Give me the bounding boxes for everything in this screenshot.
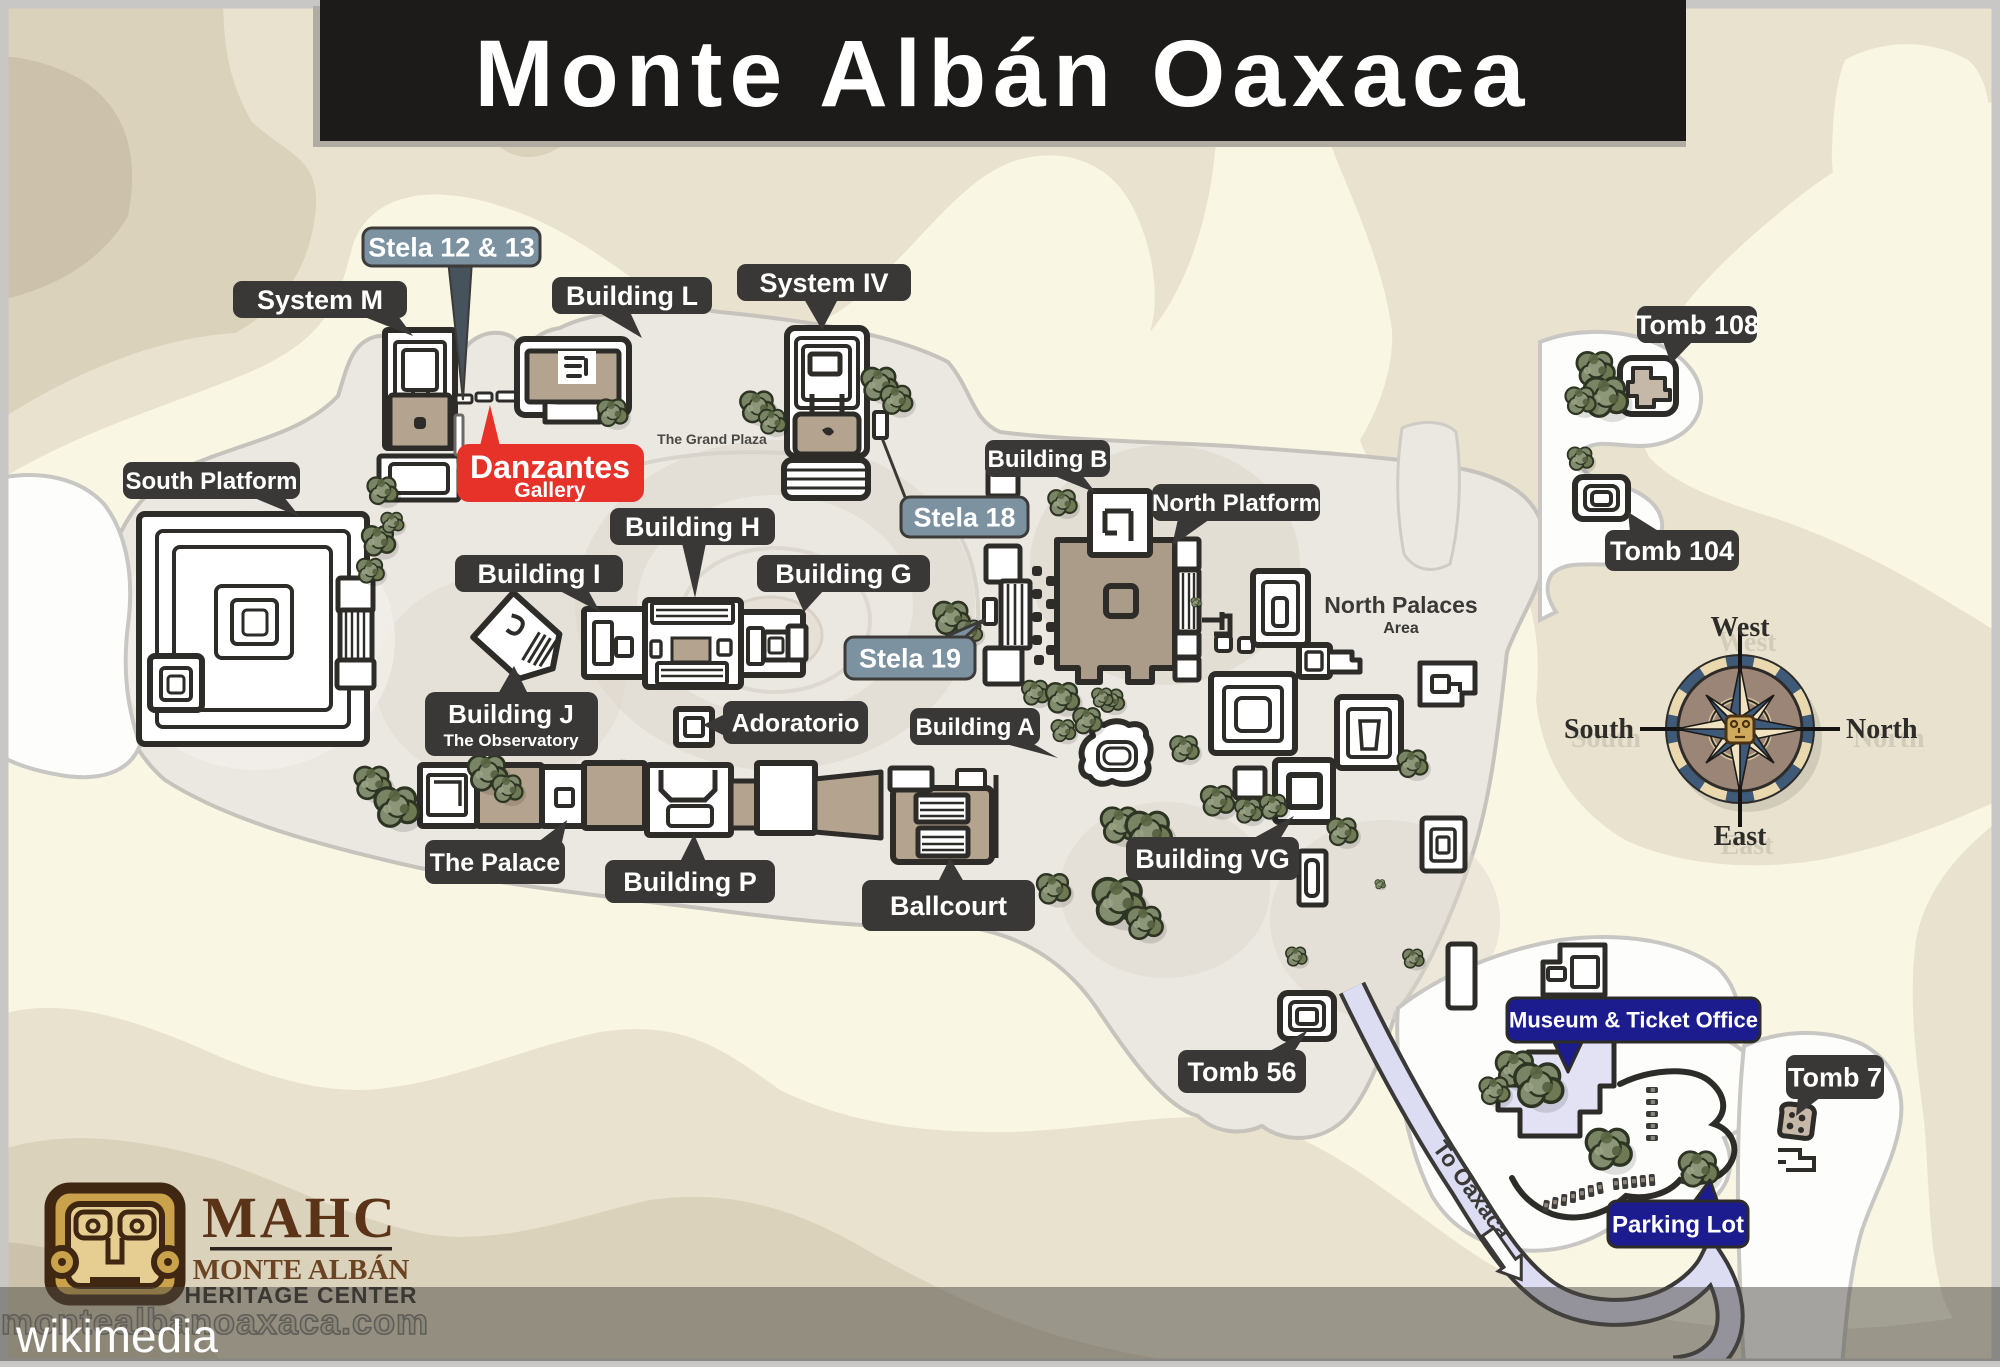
svg-text:System IV: System IV	[759, 268, 888, 298]
svg-text:System M: System M	[257, 285, 383, 315]
svg-text:East: East	[1714, 821, 1768, 852]
svg-text:Stela 12 & 13: Stela 12 & 13	[368, 232, 535, 262]
svg-text:The Palace: The Palace	[430, 849, 561, 877]
svg-text:Building B: Building B	[988, 446, 1108, 473]
svg-text:Building A: Building A	[915, 714, 1034, 741]
svg-text:Museum & Ticket Office: Museum & Ticket Office	[1509, 1008, 1758, 1033]
svg-text:Building G: Building G	[775, 559, 911, 589]
svg-text:The Observatory: The Observatory	[443, 731, 579, 750]
svg-text:Ballcourt: Ballcourt	[890, 891, 1007, 921]
svg-text:The Grand Plaza: The Grand Plaza	[657, 431, 767, 447]
svg-text:South Platform: South Platform	[126, 468, 298, 495]
svg-text:Monte Albán Oaxaca: Monte Albán Oaxaca	[475, 21, 1532, 127]
svg-text:Tomb 7: Tomb 7	[1788, 1062, 1882, 1092]
svg-text:Stela 19: Stela 19	[859, 643, 961, 673]
svg-text:Building H: Building H	[625, 512, 760, 542]
svg-text:wikimedia: wikimedia	[15, 1310, 218, 1362]
svg-text:North Palaces: North Palaces	[1324, 592, 1477, 618]
svg-text:Stela 18: Stela 18	[913, 502, 1015, 532]
svg-text:MAHC: MAHC	[202, 1185, 398, 1250]
svg-text:North: North	[1846, 714, 1918, 745]
svg-text:Area: Area	[1383, 620, 1419, 637]
svg-text:North Platform: North Platform	[1152, 490, 1320, 517]
svg-text:Parking Lot: Parking Lot	[1612, 1211, 1744, 1238]
svg-text:Building L: Building L	[566, 281, 698, 311]
svg-text:Building VG: Building VG	[1135, 844, 1290, 874]
svg-text:Adoratorio: Adoratorio	[732, 709, 860, 737]
svg-text:Building I: Building I	[478, 559, 601, 589]
svg-text:Building J: Building J	[448, 699, 574, 729]
svg-text:Gallery: Gallery	[514, 479, 586, 502]
svg-text:Building P: Building P	[623, 867, 756, 897]
svg-text:Tomb 56: Tomb 56	[1187, 1057, 1296, 1087]
svg-text:Tomb 108: Tomb 108	[1635, 310, 1759, 340]
svg-text:Tomb 104: Tomb 104	[1610, 536, 1734, 566]
svg-text:West: West	[1710, 612, 1770, 643]
svg-text:South: South	[1564, 714, 1634, 745]
